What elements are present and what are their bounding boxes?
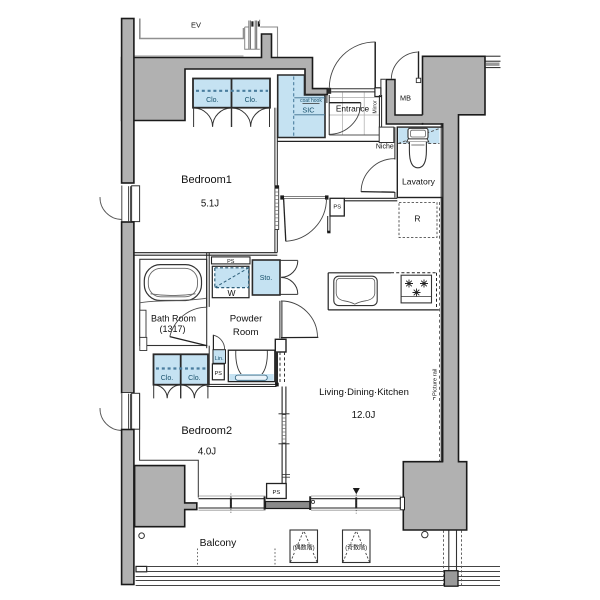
svg-text:Living·Dining·Kitchen: Living·Dining·Kitchen xyxy=(319,387,409,398)
svg-text:Lin.: Lin. xyxy=(215,356,224,362)
svg-text:Sto.: Sto. xyxy=(260,275,273,282)
svg-text:PS: PS xyxy=(227,259,235,265)
svg-text:Room: Room xyxy=(233,327,259,338)
svg-text:5.1J: 5.1J xyxy=(201,199,219,210)
svg-text:PS: PS xyxy=(333,205,341,211)
svg-text:Powder: Powder xyxy=(230,313,263,324)
svg-text:12.0J: 12.0J xyxy=(352,410,376,421)
svg-text:Niche: Niche xyxy=(376,144,394,151)
svg-text:(奇数階): (奇数階) xyxy=(345,544,367,552)
svg-text:W: W xyxy=(227,288,235,298)
svg-text:SIC: SIC xyxy=(302,106,314,115)
svg-text:Clo.: Clo. xyxy=(245,97,258,104)
svg-text:Bedroom1: Bedroom1 xyxy=(181,174,232,186)
svg-text:MB: MB xyxy=(400,94,411,103)
svg-text:PS: PS xyxy=(215,371,223,377)
svg-text:Picture rail: Picture rail xyxy=(433,369,439,396)
svg-text:Mirror: Mirror xyxy=(373,100,379,113)
svg-text:PS: PS xyxy=(273,490,281,496)
svg-text:Lavatory: Lavatory xyxy=(402,177,436,187)
svg-text:4.0J: 4.0J xyxy=(198,447,216,458)
svg-text:Bedroom2: Bedroom2 xyxy=(181,425,232,437)
svg-text:Bath Room: Bath Room xyxy=(151,314,196,324)
svg-text:Entrance: Entrance xyxy=(336,104,370,114)
svg-text:R: R xyxy=(414,214,420,224)
svg-text:EV: EV xyxy=(191,21,201,30)
svg-text:Clo.: Clo. xyxy=(206,97,219,104)
svg-text:Balcony: Balcony xyxy=(200,538,237,549)
svg-text:(偶数階): (偶数階) xyxy=(293,544,315,552)
svg-text:Clo.: Clo. xyxy=(161,375,174,382)
svg-text:Clo.: Clo. xyxy=(188,375,201,382)
